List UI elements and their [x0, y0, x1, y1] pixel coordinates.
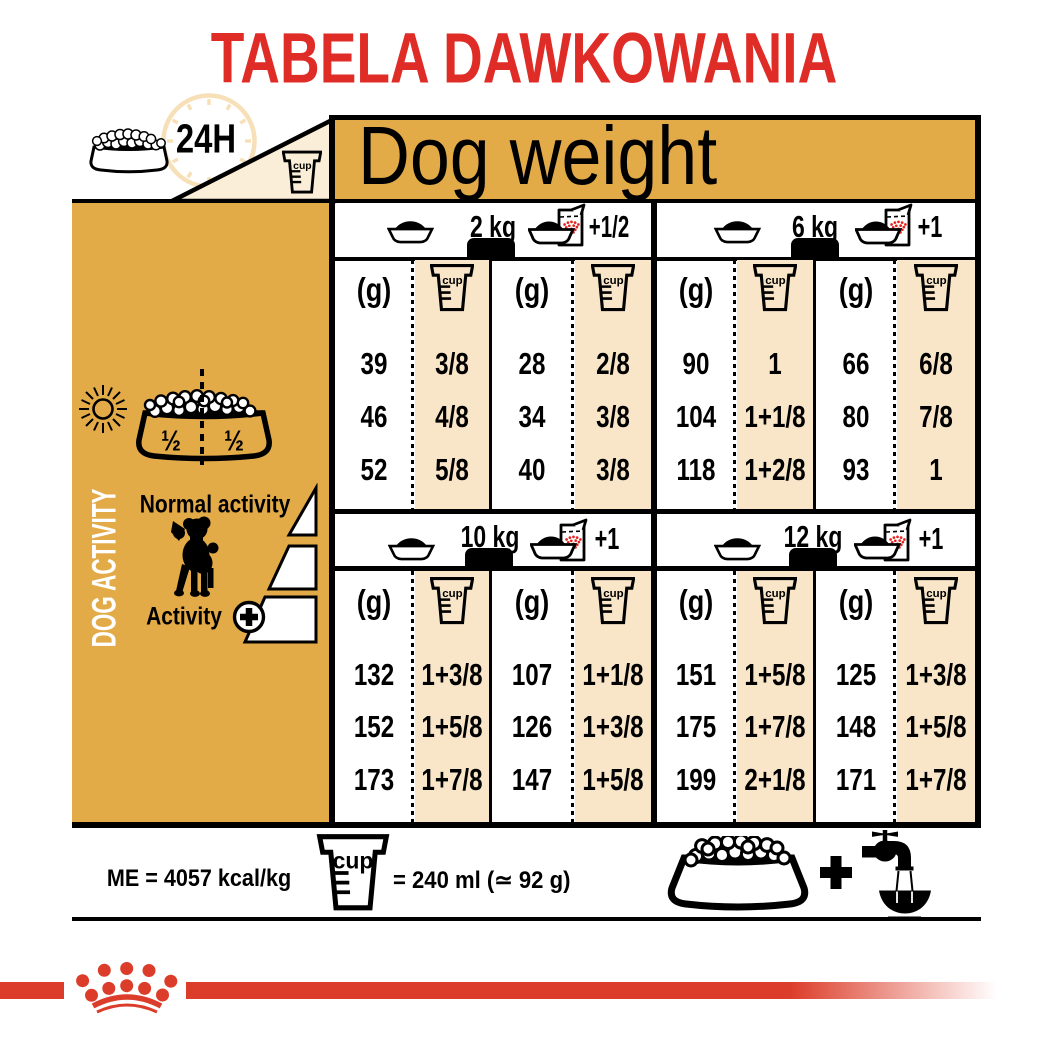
svg-text:cup: cup [333, 848, 374, 874]
